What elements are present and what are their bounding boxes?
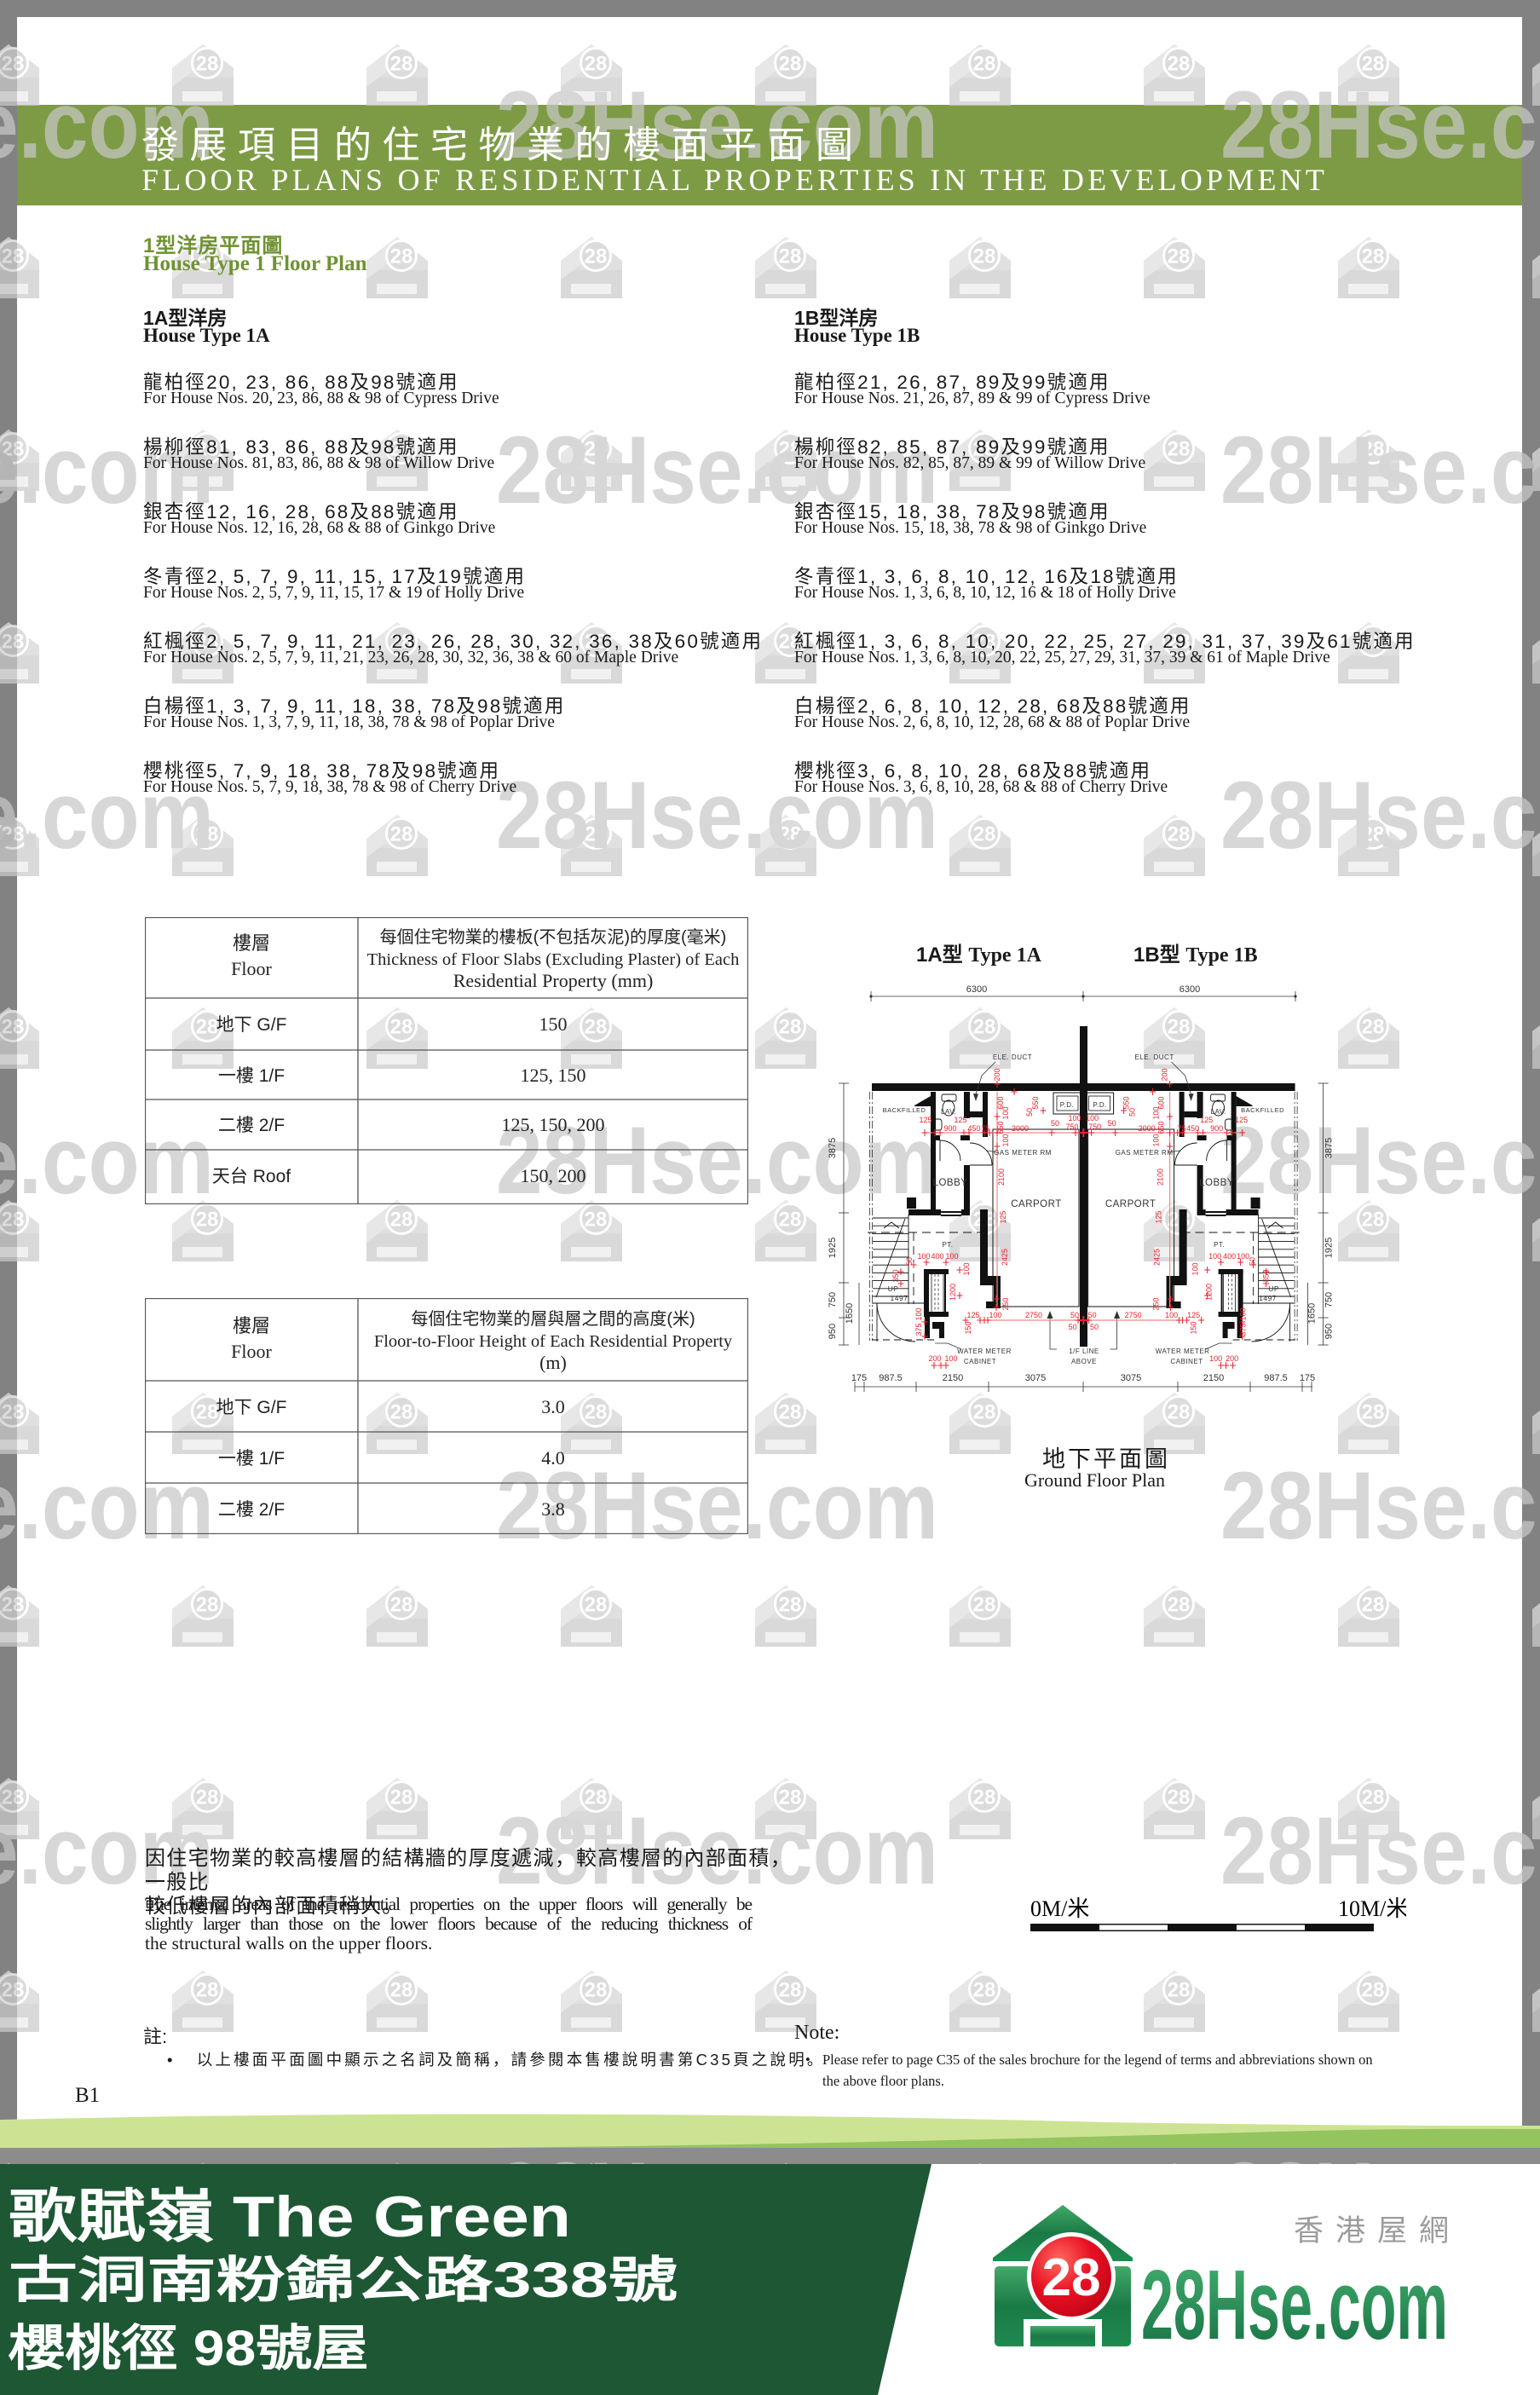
svg-text:100: 100: [1152, 1134, 1161, 1146]
svg-text:75: 75: [1178, 1124, 1186, 1133]
svg-text:LAV.: LAV.: [941, 1108, 956, 1116]
svg-text:375: 375: [1239, 1323, 1248, 1336]
svg-text:2100: 2100: [997, 1169, 1006, 1186]
svg-text:400: 400: [931, 1252, 943, 1261]
svg-text:150: 150: [539, 1013, 568, 1035]
svg-text:1200: 1200: [949, 1284, 957, 1301]
svg-text:150: 150: [964, 1321, 972, 1334]
svg-text:200: 200: [928, 1354, 941, 1363]
svg-text:450: 450: [1186, 1124, 1199, 1133]
svg-text:一樓 1/F: 一樓 1/F: [218, 1449, 285, 1469]
svg-text:100: 100: [989, 1311, 1001, 1319]
svg-text:175: 175: [851, 1373, 867, 1383]
svg-text:2000: 2000: [1139, 1124, 1156, 1133]
svg-text:750: 750: [1324, 1292, 1335, 1307]
svg-text:100: 100: [1165, 1311, 1178, 1319]
svg-text:地下 G/F: 地下 G/F: [216, 1398, 287, 1417]
svg-text:1/F LINE: 1/F LINE: [1069, 1348, 1099, 1355]
svg-text:3.8: 3.8: [541, 1498, 565, 1520]
svg-text:50: 50: [1128, 1108, 1137, 1117]
svg-text:100: 100: [1001, 1134, 1010, 1146]
svg-text:PT.: PT.: [942, 1241, 953, 1249]
svg-text:3.0: 3.0: [541, 1396, 565, 1417]
svg-text:200: 200: [1226, 1354, 1238, 1363]
svg-text:100: 100: [1209, 1354, 1222, 1363]
svg-text:ELE. DUCT: ELE. DUCT: [993, 1053, 1032, 1061]
svg-text:2000: 2000: [1012, 1124, 1029, 1133]
svg-text:CABINET: CABINET: [1171, 1358, 1203, 1365]
svg-text:650: 650: [1157, 1121, 1166, 1134]
svg-text:100: 100: [914, 1307, 923, 1320]
svg-text:550: 550: [1031, 1096, 1040, 1109]
svg-text:350: 350: [891, 1269, 900, 1282]
svg-text:950: 950: [828, 1324, 838, 1339]
svg-text:0M/米: 0M/米: [1030, 1896, 1089, 1921]
svg-text:每個住宅物業的層與層之間的高度(米): 每個住宅物業的層與層之間的高度(米): [411, 1309, 695, 1329]
svg-text:ABOVE: ABOVE: [1071, 1358, 1097, 1365]
svg-text:375: 375: [914, 1323, 923, 1336]
svg-text:一樓 1/F: 一樓 1/F: [218, 1066, 285, 1086]
svg-text:650: 650: [996, 1121, 1005, 1134]
svg-text:100: 100: [1001, 1106, 1010, 1119]
svg-text:CABINET: CABINET: [964, 1358, 996, 1365]
svg-text:6300: 6300: [1180, 984, 1200, 995]
svg-text:28Hse.com: 28Hse.com: [1220, 417, 1540, 523]
svg-text:100: 100: [945, 1252, 958, 1261]
svg-text:125: 125: [1155, 1210, 1163, 1223]
svg-text:天台 Roof: 天台 Roof: [212, 1167, 291, 1186]
svg-text:100: 100: [1237, 1252, 1249, 1261]
svg-text:125, 150: 125, 150: [521, 1065, 586, 1086]
svg-text:3875: 3875: [828, 1138, 838, 1158]
svg-text:200: 200: [1161, 1068, 1169, 1081]
svg-text:1650: 1650: [845, 1303, 855, 1324]
svg-text:CARPORT: CARPORT: [1011, 1199, 1062, 1209]
svg-text:3075: 3075: [1025, 1373, 1046, 1383]
svg-text:1497: 1497: [891, 1294, 908, 1302]
svg-text:28Hse.com: 28Hse.com: [1141, 2249, 1448, 2357]
svg-text:100: 100: [1068, 1114, 1081, 1122]
svg-text:LOBBY: LOBBY: [1199, 1178, 1234, 1188]
svg-text:100: 100: [1191, 1262, 1200, 1275]
svg-text:50: 50: [1108, 1119, 1116, 1128]
svg-text:750: 750: [1088, 1122, 1101, 1131]
svg-text:50: 50: [905, 1257, 914, 1266]
svg-text:125: 125: [999, 1210, 1007, 1223]
svg-text:CARPORT: CARPORT: [1105, 1199, 1156, 1209]
svg-text:550: 550: [1122, 1096, 1131, 1109]
svg-text:BACKFILLED: BACKFILLED: [1241, 1106, 1284, 1114]
svg-text:Thickness of Floor Slabs (Excl: Thickness of Floor Slabs (Excluding Plas…: [367, 950, 740, 969]
svg-text:樓層: 樓層: [233, 932, 270, 954]
svg-text:400: 400: [1223, 1252, 1236, 1261]
svg-text:100: 100: [944, 1354, 957, 1363]
svg-text:900: 900: [943, 1124, 956, 1133]
svg-text:100: 100: [1152, 1106, 1161, 1119]
svg-text:250: 250: [1152, 1297, 1161, 1310]
svg-text:P.D.: P.D.: [1060, 1101, 1075, 1109]
svg-text:2425: 2425: [1001, 1249, 1009, 1266]
svg-text:100: 100: [917, 1252, 930, 1261]
svg-text:125: 125: [966, 1311, 979, 1319]
svg-text:750: 750: [1065, 1122, 1078, 1131]
svg-text:28Hse.com: 28Hse.com: [1220, 2143, 1540, 2164]
svg-text:150: 150: [1190, 1321, 1198, 1334]
svg-text:二樓 2/F: 二樓 2/F: [218, 1500, 285, 1520]
svg-text:125: 125: [1200, 1116, 1213, 1124]
svg-text:WATER METER: WATER METER: [1156, 1348, 1210, 1355]
svg-text:1200: 1200: [1205, 1284, 1214, 1301]
svg-text:(m): (m): [539, 1352, 567, 1373]
svg-text:50: 50: [1069, 1323, 1077, 1331]
svg-text:28Hse.com: 28Hse.com: [496, 2143, 938, 2164]
svg-text:28Hse.com: 28Hse.com: [1220, 1798, 1540, 1904]
svg-text:BACKFILLED: BACKFILLED: [883, 1106, 926, 1114]
svg-text:1925: 1925: [1324, 1238, 1335, 1258]
svg-text:2150: 2150: [1203, 1373, 1224, 1383]
svg-text:1650: 1650: [1307, 1303, 1318, 1324]
svg-text:28Hse.com: 28Hse.com: [1220, 762, 1540, 869]
svg-text:125: 125: [1235, 1116, 1248, 1124]
svg-text:2750: 2750: [1125, 1311, 1142, 1319]
svg-text:50: 50: [1088, 1311, 1097, 1319]
svg-text:Floor: Floor: [231, 1341, 272, 1362]
svg-text:2150: 2150: [943, 1373, 963, 1383]
svg-text:125, 150, 200: 125, 150, 200: [502, 1114, 605, 1135]
svg-text:GAS METER RM: GAS METER RM: [1116, 1149, 1174, 1157]
svg-text:GAS METER RM: GAS METER RM: [994, 1149, 1052, 1157]
svg-text:2750: 2750: [1025, 1311, 1042, 1319]
svg-text:987.5: 987.5: [1264, 1373, 1288, 1383]
svg-text:UP: UP: [1268, 1284, 1279, 1293]
svg-text:450: 450: [967, 1124, 980, 1133]
svg-text:LAV.: LAV.: [1211, 1108, 1226, 1116]
svg-text:987.5: 987.5: [879, 1373, 903, 1383]
svg-text:750: 750: [828, 1292, 838, 1307]
svg-text:250: 250: [1001, 1297, 1010, 1310]
svg-text:125: 125: [919, 1116, 931, 1124]
svg-text:100: 100: [1239, 1307, 1248, 1320]
svg-text:6300: 6300: [966, 984, 987, 995]
svg-text:175: 175: [1300, 1373, 1315, 1383]
svg-text:125: 125: [954, 1116, 966, 1124]
svg-text:4.0: 4.0: [541, 1447, 565, 1469]
svg-text:950: 950: [1324, 1324, 1335, 1339]
svg-text:地下 G/F: 地下 G/F: [216, 1015, 287, 1035]
svg-text:100: 100: [1086, 1114, 1099, 1122]
svg-text:2100: 2100: [1156, 1169, 1165, 1186]
svg-text:3075: 3075: [1121, 1373, 1141, 1383]
svg-text:Residential Property (mm): Residential Property (mm): [453, 970, 654, 991]
svg-text:150, 200: 150, 200: [521, 1165, 586, 1186]
svg-text:50: 50: [1025, 1108, 1034, 1117]
svg-text:125: 125: [1187, 1311, 1200, 1319]
svg-text:2425: 2425: [1153, 1249, 1162, 1266]
svg-text:二樓 2/F: 二樓 2/F: [218, 1116, 285, 1135]
svg-text:UP: UP: [888, 1284, 899, 1293]
svg-text:100: 100: [1208, 1252, 1221, 1261]
svg-text:900: 900: [1210, 1124, 1223, 1133]
svg-text:28Hse.com: 28Hse.com: [0, 2143, 214, 2164]
svg-text:1497: 1497: [1259, 1294, 1277, 1302]
svg-text:1925: 1925: [828, 1238, 838, 1258]
svg-text:3875: 3875: [1324, 1138, 1335, 1158]
svg-text:香港屋網: 香港屋網: [1294, 2214, 1461, 2248]
svg-text:200: 200: [993, 1068, 1001, 1081]
svg-text:50: 50: [1090, 1323, 1099, 1331]
svg-text:樓層: 樓層: [233, 1315, 270, 1336]
svg-text:Floor: Floor: [231, 958, 272, 979]
svg-text:每個住宅物業的樓板(不包括灰泥)的厚度(毫米): 每個住宅物業的樓板(不包括灰泥)的厚度(毫米): [380, 927, 727, 947]
svg-text:50: 50: [1070, 1311, 1079, 1319]
svg-text:LOBBY: LOBBY: [933, 1178, 968, 1188]
svg-text:P.D.: P.D.: [1093, 1101, 1107, 1109]
svg-text:Floor-to-Floor Height of Each: Floor-to-Floor Height of Each Residentia…: [374, 1332, 733, 1351]
svg-text:100: 100: [962, 1262, 971, 1275]
svg-text:10M/米: 10M/米: [1338, 1896, 1406, 1921]
svg-text:75: 75: [981, 1124, 989, 1133]
svg-text:PT.: PT.: [1214, 1241, 1225, 1249]
svg-text:350: 350: [1262, 1269, 1271, 1282]
svg-text:ELE. DUCT: ELE. DUCT: [1134, 1053, 1174, 1061]
svg-text:50: 50: [1051, 1119, 1059, 1128]
svg-text:WATER METER: WATER METER: [957, 1348, 1012, 1355]
svg-text:28: 28: [1042, 2248, 1101, 2307]
